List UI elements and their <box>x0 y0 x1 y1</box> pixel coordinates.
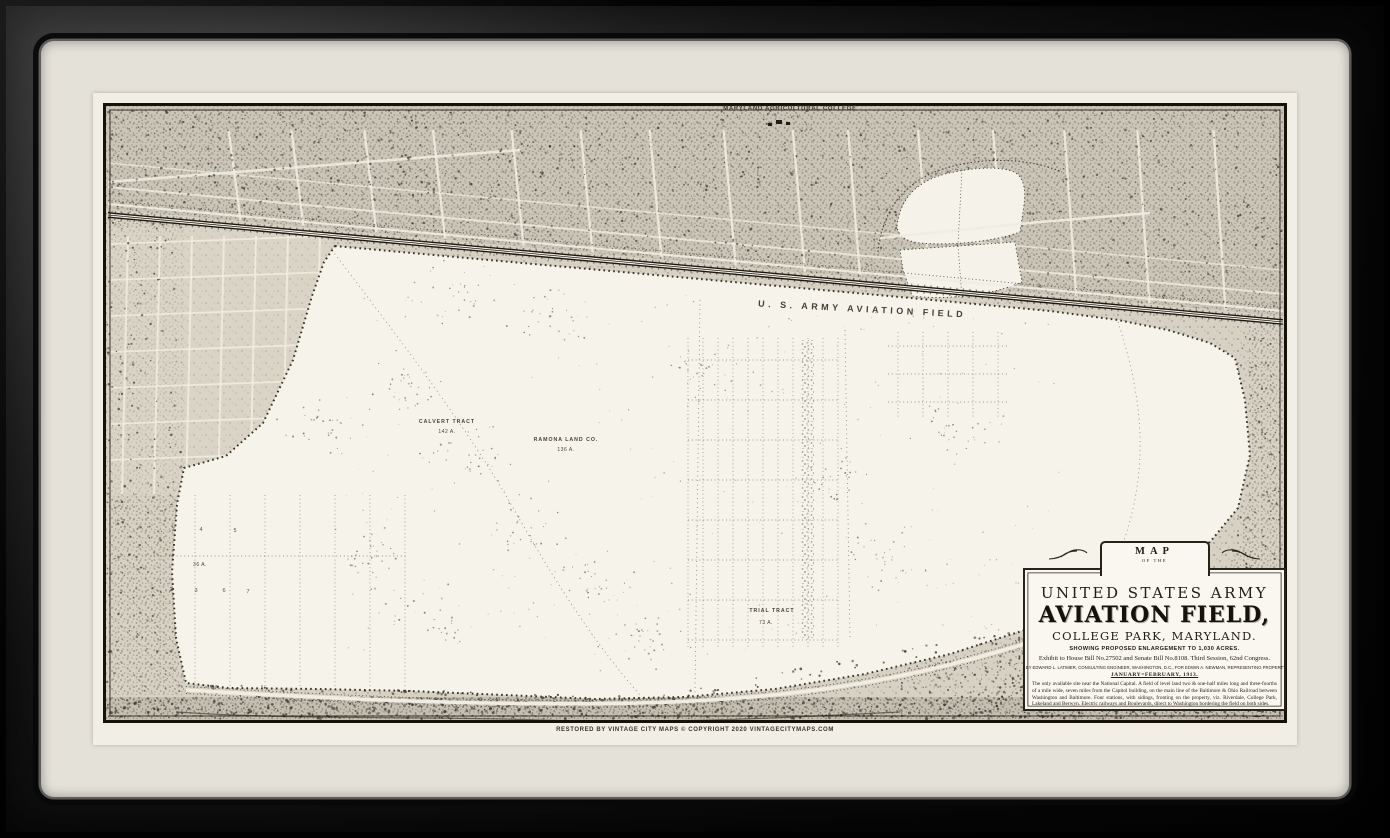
dark-parcel-strip <box>800 340 814 640</box>
tract3-label: TRIAL TRACT <box>749 608 794 614</box>
cartouche-of-the: OF THE <box>1102 558 1208 563</box>
cartouche-scale: SCALE: 1 INCH = 320 FEET <box>1209 710 1284 711</box>
cartouche-title: AVIATION FIELD, <box>1039 602 1270 628</box>
tract2-area: 136 A. <box>557 447 574 453</box>
svg-text:5: 5 <box>233 528 236 534</box>
cartouche-date: JANUARY=FEBRUARY, 1913. <box>1111 672 1198 678</box>
tract3-area: 73 A. <box>759 620 773 626</box>
cartouche-army-line: UNITED STATES ARMY <box>1041 584 1268 602</box>
framed-map-photo: U. S. ARMY AVIATION FIELD CALVERT TRACT … <box>0 0 1390 838</box>
cartouche-place: COLLEGE PARK, MARYLAND. <box>1052 629 1257 643</box>
svg-text:2: 2 <box>169 587 172 593</box>
cartouche-prepared: PREPARED BY EDWARD L. LATIMER, CONSULTIN… <box>1023 665 1286 670</box>
tract2-label: RAMONA LAND CO. <box>534 437 599 443</box>
restoration-caption: RESTORED BY VINTAGE CITY MAPS © COPYRIGH… <box>103 727 1287 733</box>
svg-text:4: 4 <box>199 527 202 533</box>
cartouche-exhibit: Exhibit to House Bill No.27502 and Senat… <box>1039 655 1270 662</box>
flourish-icon <box>1047 547 1089 561</box>
cartouche-description: The only available site near the Nationa… <box>1025 681 1284 708</box>
title-cartouche: UNITED STATES ARMY AVIATION FIELD, COLLE… <box>1023 541 1286 711</box>
flourish-icon <box>1220 547 1262 561</box>
parcel-area-label: 36 A. <box>193 562 207 568</box>
svg-text:1: 1 <box>171 527 174 533</box>
svg-text:6: 6 <box>222 588 225 594</box>
cartouche-panel: UNITED STATES ARMY AVIATION FIELD, COLLE… <box>1023 568 1286 711</box>
cartouche-showing: SHOWING PROPOSED ENLARGEMENT TO 1,030 AC… <box>1069 646 1239 652</box>
college-label: MARYLAND AGRICULTURAL COLLEGE <box>690 106 890 112</box>
svg-text:3: 3 <box>194 588 197 594</box>
cartouche-banner: MAP OF THE <box>1100 541 1210 576</box>
tract1-label: CALVERT TRACT <box>419 419 475 425</box>
svg-text:7: 7 <box>246 589 249 595</box>
cartouche-map-word: MAP <box>1102 546 1208 557</box>
tract1-area: 142 A. <box>438 429 455 435</box>
